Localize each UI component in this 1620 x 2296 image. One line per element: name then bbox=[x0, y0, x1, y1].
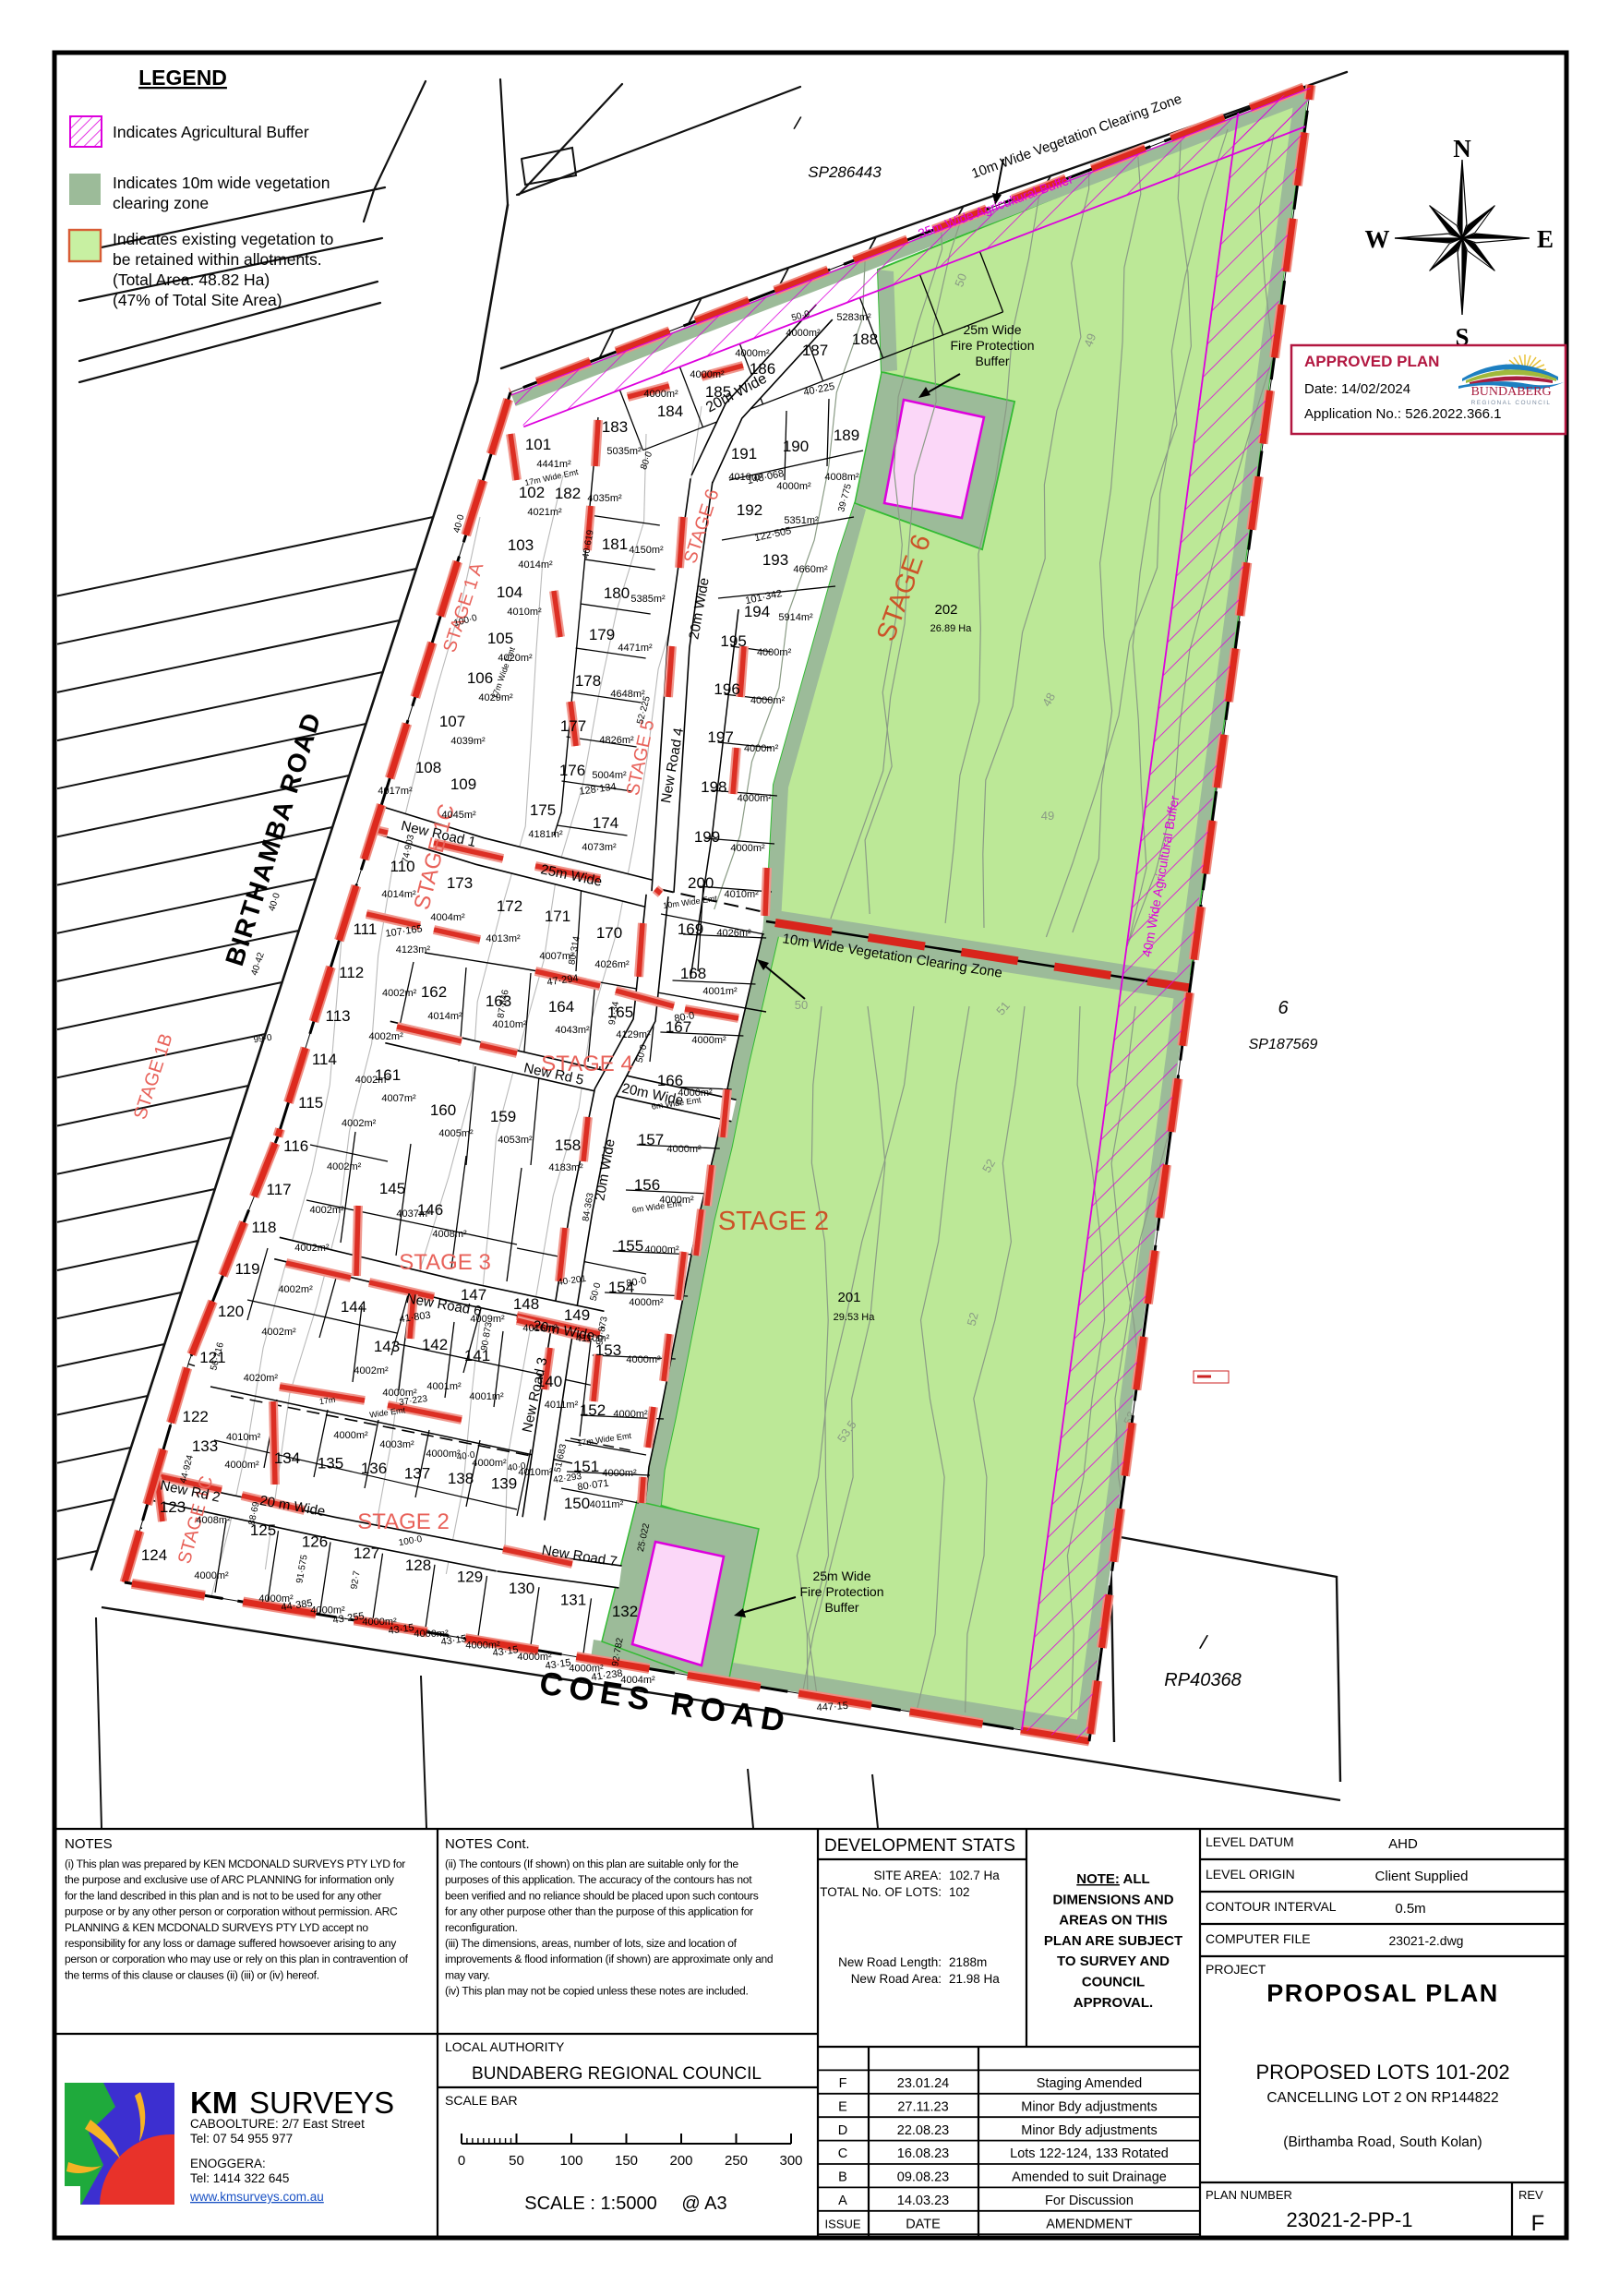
svg-text:New Road Area:: New Road Area: bbox=[851, 1972, 942, 1986]
svg-text:SP187569: SP187569 bbox=[1249, 1037, 1318, 1052]
svg-text:174: 174 bbox=[593, 814, 618, 832]
svg-text:136: 136 bbox=[361, 1460, 387, 1477]
svg-text:150: 150 bbox=[615, 2153, 638, 2169]
svg-text:Minor Bdy adjustments: Minor Bdy adjustments bbox=[1021, 2123, 1157, 2138]
svg-text:A: A bbox=[838, 2194, 847, 2208]
svg-text:AREAS ON THIS: AREAS ON THIS bbox=[1059, 1913, 1168, 1929]
svg-text:CABOOLTURE: 2/7 East Street: CABOOLTURE: 2/7 East Street bbox=[190, 2117, 365, 2131]
svg-text:182: 182 bbox=[555, 485, 581, 502]
svg-text:4029m²: 4029m² bbox=[478, 692, 513, 703]
svg-text:Application No.: 526.2022.366.: Application No.: 526.2022.366.1 bbox=[1304, 406, 1502, 422]
svg-text:4000m²: 4000m² bbox=[730, 843, 765, 854]
svg-text:111: 111 bbox=[353, 920, 377, 938]
svg-text:118: 118 bbox=[251, 1219, 276, 1236]
svg-text:132: 132 bbox=[612, 1603, 638, 1620]
svg-text:PROPOSED LOTS 101-202: PROPOSED LOTS 101-202 bbox=[1255, 2061, 1509, 2084]
svg-text:4001m²: 4001m² bbox=[469, 1391, 504, 1402]
svg-text:STAGE 3: STAGE 3 bbox=[399, 1250, 491, 1275]
svg-text:APPROVED PLAN: APPROVED PLAN bbox=[1304, 353, 1439, 370]
svg-text:4017m²: 4017m² bbox=[378, 786, 413, 797]
svg-text:139: 139 bbox=[491, 1475, 517, 1493]
svg-text:Buffer: Buffer bbox=[824, 1600, 858, 1615]
svg-text:4471m²: 4471m² bbox=[618, 643, 653, 654]
svg-text:4441m²: 4441m² bbox=[536, 459, 571, 470]
svg-text:NOTES Cont.: NOTES Cont. bbox=[445, 1836, 530, 1852]
svg-text:4002m²: 4002m² bbox=[342, 1118, 377, 1129]
svg-text:LOCAL AUTHORITY: LOCAL AUTHORITY bbox=[445, 2039, 565, 2054]
svg-text:5914m²: 5914m² bbox=[778, 612, 813, 623]
svg-text:116: 116 bbox=[283, 1137, 308, 1155]
svg-text:09.08.23: 09.08.23 bbox=[897, 2170, 949, 2185]
svg-text:5283m²: 5283m² bbox=[836, 312, 871, 323]
svg-text:178: 178 bbox=[575, 672, 601, 690]
svg-text:4016m²: 4016m² bbox=[522, 1323, 558, 1334]
svg-text:250: 250 bbox=[725, 2153, 748, 2169]
svg-text:122: 122 bbox=[183, 1408, 209, 1425]
svg-text:PLAN NUMBER: PLAN NUMBER bbox=[1206, 2188, 1292, 2202]
svg-text:131: 131 bbox=[560, 1592, 586, 1609]
svg-text:123: 123 bbox=[160, 1498, 186, 1516]
svg-text:155: 155 bbox=[618, 1237, 643, 1255]
svg-text:PLANNING & KEN MCDONALD SURVEY: PLANNING & KEN MCDONALD SURVEYS PTY LYD … bbox=[65, 1921, 368, 1934]
svg-text:102: 102 bbox=[519, 484, 545, 501]
svg-text:the terms of this clause or cl: the terms of this clause or clauses (ii)… bbox=[65, 1968, 319, 1981]
svg-text:B: B bbox=[838, 2170, 847, 2185]
svg-text:Amended to suit Drainage: Amended to suit Drainage bbox=[1012, 2170, 1167, 2185]
svg-text:(ii) The contours (If shown) o: (ii) The contours (If shown) on this pla… bbox=[445, 1857, 738, 1870]
svg-text:4123m²: 4123m² bbox=[396, 944, 431, 956]
svg-text:4009m²: 4009m² bbox=[470, 1314, 505, 1325]
svg-text:187: 187 bbox=[802, 342, 828, 359]
svg-text:4000m²: 4000m² bbox=[678, 1088, 713, 1099]
svg-text:REV: REV bbox=[1518, 2188, 1543, 2202]
svg-text:4000m²: 4000m² bbox=[735, 348, 770, 359]
svg-text:4002m²: 4002m² bbox=[261, 1327, 296, 1338]
svg-text:4000m²: 4000m² bbox=[517, 1652, 552, 1663]
svg-text:4011m²: 4011m² bbox=[545, 1400, 579, 1411]
svg-text:163: 163 bbox=[486, 992, 511, 1010]
svg-text:102: 102 bbox=[949, 1885, 970, 1899]
svg-text:4000m²: 4000m² bbox=[613, 1409, 648, 1420]
svg-text:103: 103 bbox=[508, 536, 534, 554]
svg-text:5385m²: 5385m² bbox=[630, 594, 666, 605]
svg-text:4010m²: 4010m² bbox=[728, 472, 763, 483]
svg-text:E: E bbox=[1537, 225, 1554, 253]
svg-text:100: 100 bbox=[559, 2153, 582, 2169]
svg-text:50: 50 bbox=[509, 2153, 524, 2169]
svg-text:4000m²: 4000m² bbox=[224, 1460, 259, 1471]
svg-text:180: 180 bbox=[604, 584, 630, 602]
svg-text:4026m²: 4026m² bbox=[716, 928, 751, 939]
svg-text:may vary.: may vary. bbox=[445, 1968, 490, 1981]
svg-text:4000m²: 4000m² bbox=[569, 1664, 604, 1675]
svg-text:29.53 Ha: 29.53 Ha bbox=[834, 1312, 876, 1323]
svg-text:F: F bbox=[839, 2076, 847, 2091]
svg-text:197: 197 bbox=[707, 728, 733, 746]
svg-text:SCALE BAR: SCALE BAR bbox=[445, 2093, 518, 2108]
svg-text:4053m²: 4053m² bbox=[498, 1135, 533, 1146]
svg-text:Lots 122-124, 133 Rotated: Lots 122-124, 133 Rotated bbox=[1010, 2146, 1169, 2161]
svg-text:23021-2-PP-1: 23021-2-PP-1 bbox=[1287, 2208, 1413, 2231]
svg-text:4039m²: 4039m² bbox=[450, 736, 486, 747]
svg-text:5351m²: 5351m² bbox=[784, 515, 819, 526]
svg-text:4000m²: 4000m² bbox=[426, 1449, 461, 1460]
svg-text:4000m²: 4000m² bbox=[602, 1468, 637, 1479]
svg-text:161: 161 bbox=[375, 1066, 401, 1084]
svg-text:4007m²: 4007m² bbox=[381, 1093, 416, 1104]
svg-text:14.03.23: 14.03.23 bbox=[897, 2194, 949, 2208]
svg-text:4001m²: 4001m² bbox=[702, 986, 738, 997]
svg-text:ISSUE: ISSUE bbox=[824, 2217, 860, 2230]
svg-text:157: 157 bbox=[638, 1131, 664, 1148]
svg-text:Minor Bdy adjustments: Minor Bdy adjustments bbox=[1021, 2099, 1157, 2114]
svg-text:www.kmsurveys.com.au: www.kmsurveys.com.au bbox=[189, 2190, 324, 2204]
svg-text:117: 117 bbox=[267, 1181, 292, 1198]
svg-text:114: 114 bbox=[312, 1051, 337, 1068]
svg-text:146: 146 bbox=[417, 1201, 443, 1219]
svg-text:149: 149 bbox=[564, 1306, 590, 1324]
svg-text:142: 142 bbox=[422, 1336, 448, 1353]
svg-text:4826m²: 4826m² bbox=[599, 735, 634, 746]
svg-text:Indicates existing vegetation: Indicates existing vegetation to bbox=[113, 230, 333, 248]
svg-text:4005m²: 4005m² bbox=[438, 1128, 474, 1139]
svg-text:148: 148 bbox=[513, 1295, 539, 1313]
svg-text:Date: 14/02/2024: Date: 14/02/2024 bbox=[1304, 381, 1410, 397]
svg-text:Fire Protection: Fire Protection bbox=[799, 1584, 883, 1599]
svg-text:27.11.23: 27.11.23 bbox=[897, 2099, 948, 2114]
svg-text:4010m²: 4010m² bbox=[226, 1432, 261, 1443]
svg-text:4000m²: 4000m² bbox=[659, 1195, 694, 1206]
svg-text:4001m²: 4001m² bbox=[426, 1381, 462, 1392]
svg-text:4000m²: 4000m² bbox=[738, 793, 773, 804]
svg-text:4002m²: 4002m² bbox=[309, 1205, 344, 1216]
svg-text:NOTES: NOTES bbox=[65, 1836, 113, 1852]
svg-text:4000m²: 4000m² bbox=[776, 481, 811, 492]
svg-text:4000m²: 4000m² bbox=[362, 1617, 397, 1628]
svg-text:SCALE : 1:5000: SCALE : 1:5000 bbox=[524, 2194, 656, 2214]
svg-text:110: 110 bbox=[390, 858, 414, 875]
svg-text:4129m²: 4129m² bbox=[616, 1029, 651, 1040]
svg-text:4000m²: 4000m² bbox=[382, 1388, 417, 1399]
svg-text:192: 192 bbox=[737, 501, 762, 519]
svg-text:300: 300 bbox=[779, 2153, 802, 2169]
svg-text:4000m²: 4000m² bbox=[626, 1354, 661, 1365]
svg-text:168: 168 bbox=[680, 965, 706, 982]
svg-text:164: 164 bbox=[548, 998, 574, 1016]
svg-text:170: 170 bbox=[596, 924, 622, 942]
svg-text:4010m²: 4010m² bbox=[518, 1467, 553, 1478]
svg-text:CONTOUR INTERVAL: CONTOUR INTERVAL bbox=[1206, 1899, 1337, 1914]
svg-text:4000m²: 4000m² bbox=[414, 1629, 449, 1640]
svg-text:165: 165 bbox=[607, 1004, 633, 1021]
svg-text:115: 115 bbox=[298, 1094, 323, 1112]
svg-text:26.89 Ha: 26.89 Ha bbox=[930, 623, 973, 634]
svg-text:4648m²: 4648m² bbox=[610, 689, 645, 700]
svg-text:121: 121 bbox=[199, 1349, 225, 1366]
svg-text:186: 186 bbox=[750, 360, 775, 378]
svg-text:REGIONAL COUNCIL: REGIONAL COUNCIL bbox=[1471, 400, 1552, 406]
svg-text:4000m²: 4000m² bbox=[643, 389, 678, 400]
svg-text:SP286443: SP286443 bbox=[808, 163, 882, 181]
svg-text:171: 171 bbox=[545, 908, 570, 925]
svg-text:4004m²: 4004m² bbox=[430, 912, 465, 923]
svg-text:CANCELLING LOT 2 ON RP144822: CANCELLING LOT 2 ON RP144822 bbox=[1266, 2090, 1498, 2106]
svg-text:156: 156 bbox=[634, 1176, 660, 1194]
svg-text:SURVEYS: SURVEYS bbox=[249, 2086, 394, 2120]
svg-text:195: 195 bbox=[720, 632, 746, 650]
svg-text:160: 160 bbox=[430, 1101, 456, 1119]
svg-text:190: 190 bbox=[783, 438, 809, 455]
svg-text:23021-2.dwg: 23021-2.dwg bbox=[1389, 1933, 1464, 1948]
svg-text:173: 173 bbox=[447, 874, 473, 892]
svg-text:150: 150 bbox=[564, 1495, 590, 1512]
svg-text:109: 109 bbox=[450, 775, 476, 793]
svg-text:clearing zone: clearing zone bbox=[113, 194, 209, 212]
svg-text:N: N bbox=[1453, 135, 1471, 162]
svg-text:4002m²: 4002m² bbox=[294, 1243, 330, 1254]
svg-text:4002m²: 4002m² bbox=[278, 1284, 313, 1295]
svg-text:for the land described in this: for the land described in this plan and … bbox=[65, 1889, 381, 1902]
svg-text:4010m²: 4010m² bbox=[725, 889, 760, 900]
svg-text:101: 101 bbox=[525, 436, 551, 453]
svg-text:447·15: 447·15 bbox=[816, 1701, 848, 1713]
svg-text:141: 141 bbox=[464, 1347, 490, 1364]
svg-text:129: 129 bbox=[457, 1568, 483, 1585]
svg-text:4000m²: 4000m² bbox=[744, 743, 779, 754]
svg-text:4000m²: 4000m² bbox=[258, 1593, 294, 1605]
svg-text:124: 124 bbox=[141, 1546, 167, 1564]
svg-text:Buffer: Buffer bbox=[975, 354, 1009, 368]
svg-text:4002m²: 4002m² bbox=[382, 988, 417, 999]
svg-text:134: 134 bbox=[274, 1449, 300, 1467]
svg-text:152: 152 bbox=[580, 1401, 606, 1419]
svg-text:4000m²: 4000m² bbox=[666, 1144, 702, 1155]
svg-text:193: 193 bbox=[762, 551, 788, 569]
svg-text:106: 106 bbox=[467, 669, 493, 687]
svg-text:been verified and no reliance: been verified and no reliance should be … bbox=[445, 1889, 759, 1902]
svg-text:4660m²: 4660m² bbox=[793, 564, 828, 575]
svg-text:119: 119 bbox=[235, 1260, 260, 1278]
svg-text:5004m²: 5004m² bbox=[592, 770, 627, 781]
svg-text:COMPUTER FILE: COMPUTER FILE bbox=[1206, 1931, 1311, 1946]
svg-text:113: 113 bbox=[326, 1007, 351, 1025]
svg-text:RP40368: RP40368 bbox=[1164, 1670, 1241, 1690]
svg-text:LEVEL DATUM: LEVEL DATUM bbox=[1206, 1834, 1294, 1849]
svg-text:AHD: AHD bbox=[1388, 1836, 1418, 1852]
svg-text:4008m²: 4008m² bbox=[196, 1515, 231, 1526]
svg-text:4045m²: 4045m² bbox=[441, 810, 476, 821]
svg-text:4043m²: 4043m² bbox=[555, 1025, 590, 1036]
svg-text:181: 181 bbox=[602, 535, 628, 553]
svg-text:25m Wide: 25m Wide bbox=[963, 322, 1021, 337]
svg-text:21.98 Ha: 21.98 Ha bbox=[949, 1972, 1000, 1986]
svg-text:144: 144 bbox=[341, 1298, 366, 1316]
svg-text:154: 154 bbox=[608, 1279, 634, 1296]
svg-text:188: 188 bbox=[852, 331, 878, 348]
svg-text:SITE AREA:: SITE AREA: bbox=[873, 1869, 942, 1882]
svg-text:172: 172 bbox=[497, 897, 522, 915]
svg-text:189: 189 bbox=[834, 427, 859, 444]
svg-text:TOTAL No. OF LOTS:: TOTAL No. OF LOTS: bbox=[820, 1885, 942, 1899]
svg-text:Client Supplied: Client Supplied bbox=[1375, 1869, 1469, 1884]
svg-text:0.5m: 0.5m bbox=[1395, 1901, 1425, 1917]
svg-text:4014m²: 4014m² bbox=[518, 559, 553, 571]
svg-text:AMENDMENT: AMENDMENT bbox=[1046, 2217, 1133, 2231]
svg-text:New Road Length:: New Road Length: bbox=[838, 1955, 942, 1969]
svg-text:COUNCIL: COUNCIL bbox=[1082, 1975, 1145, 1990]
svg-text:0: 0 bbox=[458, 2153, 465, 2169]
svg-text:135: 135 bbox=[318, 1455, 343, 1473]
svg-text:151: 151 bbox=[573, 1458, 599, 1475]
svg-text:Indicates Agricultural Buffer: Indicates Agricultural Buffer bbox=[113, 123, 309, 141]
svg-text:183: 183 bbox=[602, 418, 628, 436]
svg-text:STAGE 2: STAGE 2 bbox=[718, 1207, 829, 1236]
svg-text:23.01.24: 23.01.24 bbox=[897, 2076, 949, 2091]
svg-text:196: 196 bbox=[714, 680, 739, 698]
svg-text:107: 107 bbox=[439, 713, 465, 730]
svg-text:4183m²: 4183m² bbox=[548, 1162, 583, 1173]
svg-text:4000m²: 4000m² bbox=[333, 1430, 368, 1441]
svg-text:105: 105 bbox=[487, 630, 513, 647]
svg-text:5035m²: 5035m² bbox=[606, 446, 642, 457]
svg-text:Staging Amended: Staging Amended bbox=[1037, 2076, 1142, 2091]
svg-text:194: 194 bbox=[744, 603, 770, 620]
svg-text:128: 128 bbox=[405, 1557, 431, 1574]
svg-text:4000m²: 4000m² bbox=[750, 695, 786, 706]
svg-text:112: 112 bbox=[339, 964, 364, 981]
svg-text:Indicates 10m wide vegetation: Indicates 10m wide vegetation bbox=[113, 174, 330, 192]
svg-text:4004m²: 4004m² bbox=[620, 1675, 655, 1686]
svg-text:127: 127 bbox=[354, 1545, 379, 1562]
svg-text:4021m²: 4021m² bbox=[527, 507, 562, 518]
svg-text:reconfiguration.: reconfiguration. bbox=[445, 1921, 518, 1934]
svg-text:185: 185 bbox=[705, 383, 731, 401]
svg-text:4002m²: 4002m² bbox=[327, 1161, 362, 1172]
svg-text:108: 108 bbox=[415, 759, 441, 776]
svg-text:PLAN ARE SUBJECT: PLAN ARE SUBJECT bbox=[1044, 1933, 1182, 1949]
svg-text:4020m²: 4020m² bbox=[498, 653, 533, 664]
svg-text:APPROVAL.: APPROVAL. bbox=[1074, 1995, 1153, 2011]
svg-text:F: F bbox=[1531, 2211, 1545, 2236]
svg-text:4008m²: 4008m² bbox=[824, 472, 859, 483]
svg-text:198: 198 bbox=[701, 778, 726, 796]
svg-text:4000m²: 4000m² bbox=[786, 328, 821, 339]
svg-text:25m Wide: 25m Wide bbox=[812, 1569, 870, 1583]
svg-text:4014m²: 4014m² bbox=[381, 889, 416, 900]
svg-text:4000m²: 4000m² bbox=[310, 1605, 345, 1617]
svg-text:DEVELOPMENT STATS: DEVELOPMENT STATS bbox=[824, 1836, 1015, 1856]
svg-text:ENOGGERA:: ENOGGERA: bbox=[190, 2157, 266, 2170]
svg-text:purpose or by any other person: purpose or by any other person or corpor… bbox=[65, 1905, 398, 1918]
svg-text:4000m²: 4000m² bbox=[691, 1035, 726, 1046]
svg-text:@ A3: @ A3 bbox=[681, 2194, 726, 2214]
svg-text:be retained within allotments.: be retained within allotments. bbox=[113, 250, 322, 269]
svg-text:DATE: DATE bbox=[906, 2217, 941, 2231]
svg-text:4000m²: 4000m² bbox=[629, 1297, 664, 1308]
svg-text:179: 179 bbox=[589, 626, 615, 643]
svg-text:202: 202 bbox=[934, 602, 957, 618]
svg-text:4026m²: 4026m² bbox=[594, 959, 630, 970]
svg-text:(Total Area: 48.82 Ha): (Total Area: 48.82 Ha) bbox=[113, 270, 270, 289]
svg-text:responsibility for any loss or: responsibility for any loss or damage su… bbox=[65, 1937, 397, 1950]
svg-text:143: 143 bbox=[374, 1338, 400, 1355]
svg-text:E: E bbox=[838, 2099, 847, 2114]
svg-text:LEVEL ORIGIN: LEVEL ORIGIN bbox=[1206, 1867, 1295, 1881]
svg-text:4002m²: 4002m² bbox=[354, 1365, 389, 1376]
svg-text:D: D bbox=[838, 2123, 847, 2138]
svg-text:4013m²: 4013m² bbox=[486, 933, 521, 944]
svg-text:4008m²: 4008m² bbox=[432, 1229, 467, 1240]
svg-text:145: 145 bbox=[379, 1180, 405, 1197]
svg-text:(47% of Total Site Area): (47% of Total Site Area) bbox=[113, 291, 282, 309]
svg-text:169: 169 bbox=[678, 920, 703, 938]
svg-text:4035m²: 4035m² bbox=[587, 493, 622, 504]
svg-text:199: 199 bbox=[694, 828, 720, 846]
svg-text:PROJECT: PROJECT bbox=[1206, 1962, 1266, 1977]
svg-text:126: 126 bbox=[302, 1533, 328, 1551]
svg-text:Fire Protection: Fire Protection bbox=[950, 338, 1034, 353]
svg-text:Tel: 1414 322 645: Tel: 1414 322 645 bbox=[190, 2171, 289, 2185]
svg-text:STAGE 2: STAGE 2 bbox=[357, 1509, 450, 1534]
svg-text:PROPOSAL PLAN: PROPOSAL PLAN bbox=[1266, 1979, 1499, 2007]
svg-text:50: 50 bbox=[795, 998, 808, 1012]
svg-text:22.08.23: 22.08.23 bbox=[897, 2123, 949, 2138]
svg-text:BUNDABERG: BUNDABERG bbox=[1470, 385, 1551, 399]
svg-text:4073m²: 4073m² bbox=[582, 842, 617, 853]
svg-text:140: 140 bbox=[536, 1373, 562, 1390]
svg-text:4150m²: 4150m² bbox=[629, 545, 664, 556]
svg-text:4014m²: 4014m² bbox=[427, 1011, 462, 1022]
svg-text:4010m²: 4010m² bbox=[492, 1019, 527, 1030]
svg-text:167: 167 bbox=[666, 1018, 691, 1036]
svg-text:Tel: 07 54 955 977: Tel: 07 54 955 977 bbox=[190, 2132, 293, 2146]
svg-text:4020m²: 4020m² bbox=[244, 1373, 279, 1384]
svg-text:4011m²: 4011m² bbox=[590, 1499, 624, 1510]
svg-text:NOTE: ALL: NOTE: ALL bbox=[1076, 1871, 1149, 1887]
svg-text:person or corporation who may: person or corporation who may use or rel… bbox=[65, 1953, 409, 1965]
svg-text:4000m²: 4000m² bbox=[472, 1458, 507, 1469]
svg-text:for any other purpose other th: for any other purpose other than the pur… bbox=[445, 1905, 753, 1918]
svg-text:130: 130 bbox=[509, 1580, 534, 1597]
svg-text:C: C bbox=[838, 2146, 847, 2161]
svg-text:4000m²: 4000m² bbox=[465, 1640, 500, 1651]
svg-text:4000m²: 4000m² bbox=[644, 1244, 679, 1256]
svg-text:For Discussion: For Discussion bbox=[1045, 2194, 1134, 2208]
svg-text:4181m²: 4181m² bbox=[528, 829, 563, 840]
svg-text:4000m²: 4000m² bbox=[690, 369, 725, 380]
svg-text:TO SURVEY AND: TO SURVEY AND bbox=[1057, 1953, 1170, 1969]
svg-text:137: 137 bbox=[404, 1465, 430, 1483]
svg-text:KM: KM bbox=[190, 2086, 237, 2120]
svg-text:176: 176 bbox=[559, 762, 585, 779]
svg-text:175: 175 bbox=[530, 801, 556, 819]
svg-text:4002m²: 4002m² bbox=[368, 1031, 403, 1042]
svg-text:purposes of this application.: purposes of this application. The accura… bbox=[445, 1873, 752, 1886]
svg-text:LEGEND: LEGEND bbox=[138, 66, 227, 90]
svg-text:201: 201 bbox=[837, 1290, 860, 1305]
svg-text:158: 158 bbox=[555, 1136, 581, 1154]
svg-text:133: 133 bbox=[192, 1437, 218, 1455]
svg-text:125: 125 bbox=[250, 1521, 276, 1539]
svg-text:102.7 Ha: 102.7 Ha bbox=[949, 1869, 1000, 1882]
svg-text:200: 200 bbox=[688, 874, 714, 892]
svg-text:4003m²: 4003m² bbox=[379, 1439, 414, 1450]
svg-text:147: 147 bbox=[461, 1286, 486, 1304]
svg-text:(iii) The dimensions, areas, n: (iii) The dimensions, areas, number of l… bbox=[445, 1937, 738, 1950]
svg-text:120: 120 bbox=[218, 1303, 244, 1320]
svg-text:177: 177 bbox=[560, 717, 586, 735]
svg-text:4000m²: 4000m² bbox=[194, 1570, 229, 1581]
